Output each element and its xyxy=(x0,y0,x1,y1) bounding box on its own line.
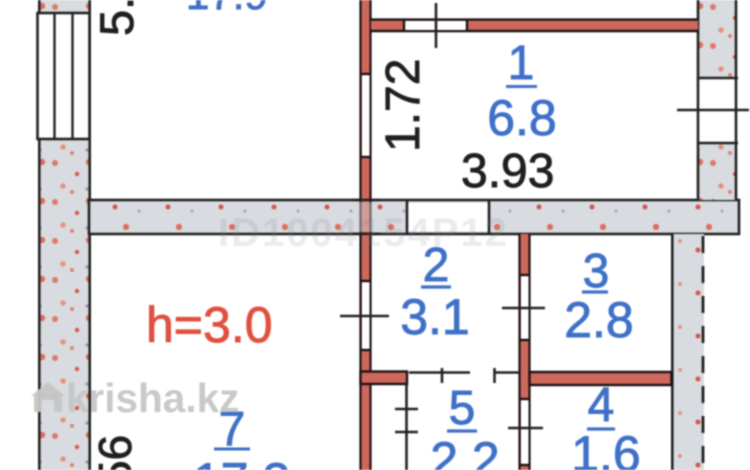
svg-text:5: 5 xyxy=(449,382,476,435)
svg-text:2.2: 2.2 xyxy=(430,432,500,470)
svg-text:ID1004154P12: ID1004154P12 xyxy=(218,211,509,255)
svg-text:3: 3 xyxy=(583,245,610,298)
svg-text:1.72: 1.72 xyxy=(377,59,430,152)
svg-text:17.9: 17.9 xyxy=(186,0,268,18)
svg-text:1: 1 xyxy=(508,37,535,90)
svg-text:2.8: 2.8 xyxy=(564,292,634,348)
svg-text:4: 4 xyxy=(588,379,615,432)
svg-text:3.93: 3.93 xyxy=(461,145,554,198)
svg-text:1.6: 1.6 xyxy=(571,426,641,470)
svg-text:2: 2 xyxy=(423,239,450,292)
svg-text:6.8: 6.8 xyxy=(487,90,557,146)
svg-text:h=3.0: h=3.0 xyxy=(146,297,273,353)
svg-text:3.1: 3.1 xyxy=(400,289,470,345)
svg-text:17.3: 17.3 xyxy=(193,453,290,470)
svg-text:5.: 5. xyxy=(90,0,143,36)
svg-text:56: 56 xyxy=(89,435,141,470)
svg-text:krisha.kz: krisha.kz xyxy=(66,375,239,421)
